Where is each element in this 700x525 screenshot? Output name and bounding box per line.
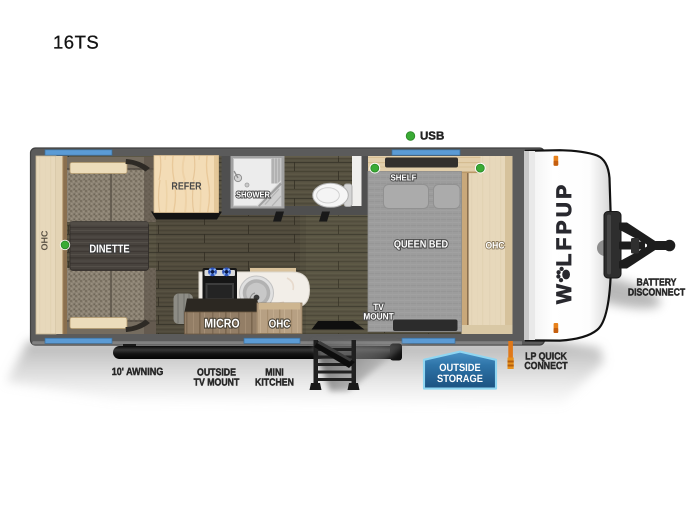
svg-text:USB: USB <box>420 131 444 143</box>
svg-text:DISCONNECT: DISCONNECT <box>628 288 686 299</box>
svg-text:TV MOUNT: TV MOUNT <box>194 378 240 389</box>
svg-text:SHELF: SHELF <box>391 173 418 183</box>
svg-text:MICRO: MICRO <box>204 317 240 331</box>
svg-text:OHC: OHC <box>40 230 50 251</box>
svg-text:SHOWER: SHOWER <box>236 190 271 200</box>
svg-text:OHC: OHC <box>269 319 291 331</box>
svg-text:STORAGE: STORAGE <box>437 373 483 385</box>
svg-text:MOUNT: MOUNT <box>363 312 394 322</box>
svg-text:LFPUP: LFPUP <box>553 182 576 267</box>
svg-text:REFER: REFER <box>171 181 202 193</box>
svg-text:10' AWNING: 10' AWNING <box>112 367 164 378</box>
svg-text:OHC: OHC <box>485 241 504 252</box>
svg-text:W: W <box>553 284 576 304</box>
svg-text:TV: TV <box>373 302 384 312</box>
svg-text:DINETTE: DINETTE <box>89 244 130 256</box>
svg-text:KITCHEN: KITCHEN <box>255 378 294 389</box>
svg-text:CONNECT: CONNECT <box>524 361 568 372</box>
svg-text:QUEEN BED: QUEEN BED <box>394 239 449 251</box>
svg-text:16TS: 16TS <box>53 32 99 53</box>
